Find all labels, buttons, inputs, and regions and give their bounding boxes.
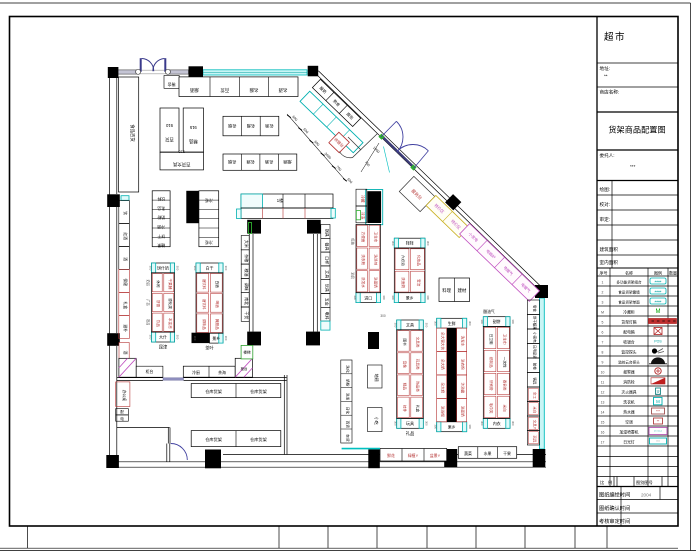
svg-text:9: 9: [602, 360, 604, 364]
svg-text:1: 1: [602, 280, 604, 284]
svg-text:300: 300: [425, 421, 429, 426]
svg-text:玩具类: 玩具类: [416, 359, 421, 370]
svg-text:小家电: 小家电: [532, 332, 537, 343]
svg-text:洗涤剂: 洗涤剂: [373, 254, 378, 265]
svg-text:泊吕: 泊吕: [351, 272, 356, 278]
svg-text:1楼: 1楼: [277, 197, 284, 204]
svg-text:图例: 图例: [654, 270, 662, 276]
svg-text:洗衣粉: 洗衣粉: [361, 254, 366, 265]
svg-text:米白: 米白: [502, 405, 507, 413]
svg-text:冷藏: 冷藏: [360, 195, 365, 203]
svg-text:配: 配: [120, 409, 124, 414]
svg-text:910: 910: [179, 150, 185, 154]
svg-text:楼梯: 楼梯: [243, 350, 251, 355]
svg-text:洗面奶: 洗面奶: [461, 406, 466, 417]
svg-text:名称: 名称: [625, 270, 633, 276]
svg-text:稀含: 稀含: [168, 82, 176, 88]
svg-text:礼盒: 礼盒: [416, 405, 421, 413]
svg-text:***: ***: [630, 164, 636, 169]
svg-text:考核审定时间: 考核审定时间: [599, 517, 630, 525]
svg-text:乳品: 乳品: [157, 206, 165, 211]
svg-text:调味: 调味: [244, 283, 250, 291]
svg-text:名酒: 名酒: [247, 159, 255, 166]
svg-text:甜饼: 甜饼: [493, 318, 501, 324]
svg-text:300: 300: [468, 424, 472, 429]
svg-text:300: 300: [394, 421, 398, 426]
svg-text:300: 300: [176, 335, 180, 340]
svg-text:绿植Y: 绿植Y: [408, 453, 419, 458]
svg-text:拜拜: 拜拜: [406, 240, 414, 246]
svg-text:空调: 空调: [625, 419, 633, 424]
svg-text:昆津: 昆津: [159, 344, 168, 351]
svg-text:例: 例: [608, 479, 612, 486]
svg-text:饼干糖果: 饼干糖果: [532, 316, 537, 330]
svg-text:图纸确认时间: 图纸确认时间: [599, 504, 630, 512]
svg-text:音像: 音像: [402, 361, 407, 369]
svg-text:监控探头: 监控探头: [621, 349, 636, 354]
svg-text:香皂类: 香皂类: [502, 380, 507, 391]
svg-text:超市: 超市: [604, 31, 626, 43]
svg-text:6: 6: [602, 330, 604, 334]
svg-text:生鲜: 生鲜: [448, 320, 456, 326]
svg-text:膨化类: 膨化类: [168, 298, 173, 309]
svg-text:干货: 干货: [244, 311, 250, 319]
svg-text:日用品货: 日用品货: [532, 345, 537, 359]
svg-text:300: 300: [380, 314, 386, 318]
svg-text:茶叶: 茶叶: [205, 345, 214, 352]
svg-text:7: 7: [602, 340, 604, 344]
svg-text:沐浴露: 沐浴露: [461, 383, 466, 394]
svg-text:奶粉: 奶粉: [345, 379, 350, 387]
svg-text:茶海: 茶海: [218, 370, 226, 375]
svg-text:11: 11: [601, 380, 605, 384]
svg-text:3: 3: [602, 300, 604, 304]
svg-text:洗面奶: 洗面奶: [373, 277, 378, 288]
svg-text:冷冻: 冷冻: [360, 212, 365, 220]
svg-text:休闲: 休闲: [156, 280, 161, 288]
svg-text:玩具: 玩具: [406, 420, 414, 426]
svg-text:朵大奶: 朵大奶: [441, 383, 446, 394]
svg-text:朵大银大信: 朵大银大信: [441, 332, 446, 350]
svg-text:10: 10: [601, 370, 605, 374]
svg-text:####: ####: [655, 299, 662, 303]
svg-text:14: 14: [601, 410, 605, 414]
svg-text:洗发: 洗发: [345, 393, 350, 401]
svg-text:名烟: 名烟: [228, 123, 236, 130]
svg-text:小吃: 小吃: [374, 417, 380, 425]
svg-text:食品货架单面: 食品货架单面: [618, 299, 640, 304]
svg-text:2: 2: [602, 290, 604, 294]
svg-text:广吕: 广吕: [146, 299, 151, 305]
svg-text:洗面奶: 洗面奶: [401, 277, 406, 288]
svg-text:泊吕: 泊吕: [146, 280, 151, 286]
svg-text:300: 300: [193, 336, 197, 341]
svg-text:烟酒: 烟酒: [190, 87, 199, 94]
svg-text:料理: 料理: [442, 287, 451, 294]
svg-text:地址:: 地址:: [600, 65, 610, 71]
svg-text:文具类: 文具类: [416, 337, 421, 348]
svg-text:酒: 酒: [123, 351, 128, 355]
svg-text:名酒: 名酒: [265, 123, 273, 130]
svg-text:洗化: 洗化: [345, 365, 350, 373]
svg-text:图书: 图书: [402, 339, 407, 347]
svg-text:**: **: [604, 74, 608, 79]
svg-text:纸制品: 纸制品: [489, 357, 494, 368]
svg-text:景乡: 景乡: [406, 294, 414, 300]
svg-text:数量: 数量: [669, 270, 677, 276]
svg-text:礼盒: 礼盒: [123, 301, 128, 309]
svg-text:白干: 白干: [206, 265, 214, 271]
svg-text:消防栓: 消防栓: [623, 379, 635, 384]
svg-text:办公桌: 办公桌: [122, 390, 127, 402]
svg-text:审定:: 审定:: [600, 216, 610, 223]
svg-text:建筑面积: 建筑面积: [600, 246, 619, 253]
svg-text:比: 比: [600, 479, 604, 486]
svg-text:灭火器具: 灭火器具: [621, 389, 636, 394]
svg-text:本变态: 本变态: [168, 318, 173, 329]
svg-text:日卫用: 日卫用: [489, 334, 494, 345]
svg-text:300: 300: [480, 421, 484, 426]
svg-text:米白: 米白: [532, 406, 537, 413]
svg-text:300: 300: [511, 319, 515, 324]
svg-text:12: 12: [601, 390, 605, 394]
svg-text:牙刷膏: 牙刷膏: [489, 380, 494, 391]
svg-text:300: 300: [391, 241, 395, 246]
svg-text:方便面: 方便面: [361, 232, 366, 243]
svg-text:调味品: 调味品: [202, 319, 207, 330]
svg-text:冲调: 冲调: [157, 225, 165, 230]
svg-text:绘图:: 绘图:: [600, 186, 610, 193]
svg-text:餐具: 餐具: [324, 243, 330, 251]
svg-text:大什: 大什: [159, 334, 167, 340]
svg-text:校对:: 校对:: [600, 201, 610, 208]
svg-text:仓库货架: 仓库货架: [205, 388, 222, 395]
svg-text:精品: 精品: [188, 138, 197, 145]
svg-text:进口: 进口: [364, 294, 372, 300]
svg-text:啤酒: 啤酒: [215, 301, 220, 309]
svg-text:糖果: 糖果: [157, 243, 165, 248]
svg-text:朵大奶: 朵大奶: [441, 359, 446, 370]
svg-text:300: 300: [193, 266, 197, 271]
svg-text:M: M: [656, 309, 661, 315]
svg-text:M: M: [656, 399, 660, 404]
svg-text:建材: 建材: [458, 287, 467, 294]
svg-text:热水器: 热水器: [623, 409, 635, 414]
svg-text:胶卷: 胶卷: [532, 363, 537, 371]
svg-text:名烟: 名烟: [247, 123, 255, 130]
svg-text:多功能货架组合: 多功能货架组合: [616, 279, 642, 284]
svg-text:百货: 百货: [220, 87, 229, 94]
svg-text:300: 300: [148, 266, 152, 271]
svg-text:蔬菜: 蔬菜: [464, 451, 472, 456]
svg-text:M: M: [601, 310, 604, 314]
svg-text:300: 300: [224, 336, 228, 341]
svg-text:洗衣机: 洗衣机: [623, 399, 635, 404]
svg-text:####: ####: [655, 289, 662, 293]
svg-text:配电箱: 配电箱: [623, 329, 635, 334]
svg-text:大米: 大米: [244, 240, 250, 248]
svg-text:文具Y: 文具Y: [532, 420, 537, 430]
svg-text:余工: 余工: [532, 392, 537, 400]
svg-text:冷藏柜: 冷藏柜: [623, 309, 635, 314]
svg-text:16: 16: [601, 430, 605, 434]
svg-text:300: 300: [426, 295, 430, 300]
svg-text:柜台: 柜台: [241, 366, 248, 371]
svg-text:白酒: 白酒: [215, 281, 220, 289]
svg-text:水果: 水果: [484, 451, 492, 456]
svg-text:六必治: 六必治: [401, 255, 406, 266]
svg-text:烟酒: 烟酒: [283, 159, 291, 166]
svg-text:洗发水: 洗发水: [461, 336, 466, 347]
svg-text:锅具: 锅具: [532, 377, 537, 385]
svg-text:饼干: 饼干: [157, 234, 165, 239]
svg-text:17: 17: [601, 440, 605, 444]
svg-text:玩具: 玩具: [324, 284, 330, 292]
svg-text:300: 300: [434, 424, 438, 429]
svg-text:文具: 文具: [324, 270, 330, 278]
svg-text:名酒: 名酒: [265, 159, 273, 166]
svg-text:名烟: 名烟: [249, 87, 258, 94]
svg-text:300: 300: [382, 295, 386, 300]
svg-text:300: 300: [176, 266, 180, 271]
svg-text:300: 300: [425, 323, 429, 328]
svg-text:精品: 精品: [402, 383, 407, 391]
svg-text:醋油气: 醋油气: [483, 309, 495, 314]
svg-text:百货文具: 百货文具: [172, 161, 190, 168]
svg-text:锅具: 锅具: [324, 229, 330, 237]
svg-text:电: 电: [120, 416, 124, 421]
svg-text:监控云台探头: 监控云台探头: [618, 359, 640, 364]
svg-text:加湿喷雾机: 加湿喷雾机: [620, 429, 639, 434]
svg-text:化妆品: 化妆品: [416, 255, 421, 266]
svg-text:滋补: 滋补: [123, 324, 128, 332]
svg-text:洗衣粉: 洗衣粉: [461, 359, 466, 370]
svg-text:货架灯箱: 货架灯箱: [621, 319, 636, 324]
svg-text:南北: 南北: [244, 297, 250, 305]
svg-text:地磅: 地磅: [374, 374, 380, 382]
svg-text:腌腊品: 腌腊品: [215, 319, 220, 330]
svg-text:报警器: 报警器: [623, 369, 635, 374]
svg-text:商店名称:: 商店名称:: [600, 89, 620, 96]
svg-text:名烟: 名烟: [228, 159, 236, 166]
svg-text:300: 300: [468, 321, 472, 326]
svg-text:日化: 日化: [345, 407, 350, 415]
svg-text:挂件: 挂件: [402, 405, 407, 413]
svg-text:盆景Y: 盆景Y: [430, 453, 441, 458]
svg-text:百货: 百货: [165, 136, 174, 143]
svg-text:饼什奶: 饼什奶: [157, 265, 169, 271]
svg-text:15: 15: [601, 420, 605, 424]
svg-text:名酒: 名酒: [278, 87, 287, 94]
svg-text:5: 5: [602, 320, 604, 324]
svg-text:洗发水: 洗发水: [361, 277, 366, 288]
svg-text:红酒: 红酒: [123, 232, 128, 240]
svg-text:零食: 零食: [532, 305, 537, 313]
svg-text:食品百货: 食品百货: [129, 124, 136, 142]
svg-text:灭: 灭: [656, 390, 660, 394]
svg-text:饮料: 饮料: [157, 197, 165, 202]
svg-text:POS: POS: [654, 340, 662, 344]
svg-text:红曲: 红曲: [351, 238, 356, 244]
svg-text:300: 300: [434, 321, 438, 326]
svg-text:礼品: 礼品: [406, 430, 415, 437]
svg-text:300: 300: [148, 335, 152, 340]
svg-text:冷柜: 冷柜: [205, 198, 213, 203]
svg-text:图别图号: 图别图号: [636, 479, 653, 486]
svg-text:300: 300: [391, 295, 395, 300]
svg-text:冷柜: 冷柜: [205, 240, 213, 245]
svg-text:委托人:: 委托人:: [600, 152, 615, 158]
svg-text:8: 8: [602, 350, 604, 354]
svg-text:####: ####: [655, 279, 662, 283]
svg-text:卫生巾: 卫生巾: [373, 232, 378, 243]
svg-text:毛巾类: 毛巾类: [489, 403, 494, 414]
svg-text:货架商品配置图: 货架商品配置图: [608, 125, 665, 135]
svg-text:2004: 2004: [641, 493, 652, 498]
svg-text:口杯: 口杯: [324, 256, 330, 264]
svg-text:景乡: 景乡: [212, 335, 220, 341]
svg-text:内衣: 内衣: [493, 420, 501, 426]
svg-text:酒: 酒: [123, 257, 128, 261]
svg-text:杂货: 杂货: [345, 434, 350, 442]
svg-text:冷厨: 冷厨: [192, 370, 200, 375]
svg-text:卫生巾: 卫生巾: [502, 334, 507, 345]
svg-text:300: 300: [394, 323, 398, 328]
svg-text:鲜花: 鲜花: [387, 453, 395, 458]
svg-text:一次性: 一次性: [502, 357, 507, 368]
svg-text:干果脯: 干果脯: [168, 279, 173, 290]
svg-text:915: 915: [189, 125, 197, 130]
svg-text:酒饮料: 酒饮料: [202, 279, 207, 290]
svg-text:五金: 五金: [324, 298, 330, 306]
svg-text:仓库货架: 仓库货架: [250, 388, 267, 395]
svg-text:饼香: 饼香: [156, 300, 161, 308]
svg-text:13: 13: [601, 400, 605, 404]
svg-text:奶粉: 奶粉: [157, 215, 165, 220]
svg-text:图纸编绘时间: 图纸编绘时间: [599, 491, 630, 499]
svg-text:百货: 百货: [345, 421, 350, 429]
svg-text:序号: 序号: [600, 270, 608, 276]
svg-text:300: 300: [511, 421, 515, 426]
svg-text:仓库货架: 仓库货架: [250, 436, 267, 443]
svg-text:饮: 饮: [123, 211, 128, 215]
svg-text:粮油: 粮油: [244, 269, 250, 277]
svg-text:300: 300: [426, 241, 430, 246]
svg-text:仓库货架: 仓库货架: [205, 436, 222, 443]
svg-text:柜台: 柜台: [146, 369, 154, 374]
svg-text:日光灯: 日光灯: [623, 439, 635, 444]
svg-text:食品货架靠墙: 食品货架靠墙: [618, 289, 640, 294]
svg-text:文具: 文具: [406, 322, 414, 328]
svg-text:泊吕: 泊吕: [146, 319, 151, 325]
svg-text:宝洁: 宝洁: [416, 279, 421, 287]
svg-text:** **-*: ** **-*: [654, 429, 663, 433]
svg-text:室内面积: 室内面积: [600, 259, 619, 266]
svg-text:300: 300: [224, 266, 228, 271]
svg-text:保健: 保健: [123, 278, 128, 286]
svg-text:玩具: 玩具: [532, 435, 537, 443]
svg-text:300: 300: [353, 295, 357, 300]
svg-text:干果: 干果: [503, 451, 511, 456]
svg-text:300: 300: [480, 319, 484, 324]
svg-text:910: 910: [165, 123, 173, 128]
svg-text:收银台: 收银台: [623, 339, 635, 344]
svg-text:杂粮: 杂粮: [244, 254, 250, 262]
svg-text:电料: 电料: [324, 312, 330, 320]
svg-text:饰品类: 饰品类: [416, 381, 421, 392]
svg-text:果乡: 果乡: [448, 423, 456, 429]
svg-text:洗浴帽: 洗浴帽: [441, 406, 446, 417]
svg-text:饮品: 饮品: [156, 320, 161, 328]
svg-text:酒饮料: 酒饮料: [202, 299, 207, 310]
